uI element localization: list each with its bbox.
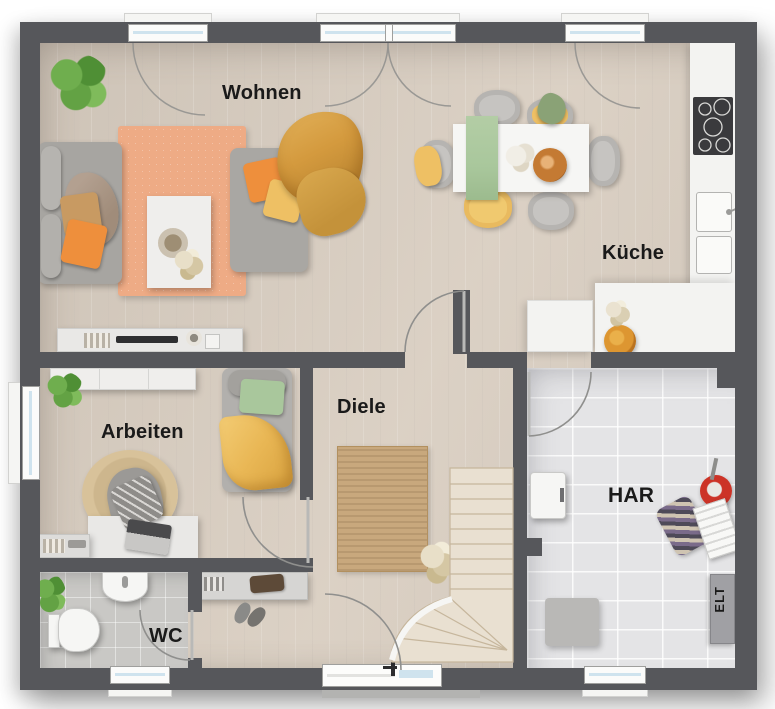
toilet: [58, 608, 100, 652]
room-label-elt: ELT: [712, 586, 727, 613]
wall-wc-hall: [188, 572, 202, 612]
speaker: [186, 330, 202, 346]
cooktop-burners: [693, 97, 733, 155]
wall-exterior-left: [20, 22, 40, 690]
wall-kitchen-hall: [467, 352, 527, 368]
tv: [116, 336, 178, 343]
books: [84, 333, 110, 348]
dining-chair: [528, 192, 574, 230]
bag: [249, 574, 284, 594]
books: [68, 540, 86, 548]
sofa-left-backrest: [41, 214, 61, 278]
room-label-wc: WC: [149, 625, 183, 648]
room-label-kueche: Küche: [602, 242, 664, 265]
room-label-har: HAR: [608, 484, 654, 508]
window: [110, 666, 170, 684]
perfume-bottles: [204, 577, 224, 591]
potted-plant: [36, 574, 66, 616]
wall-kitchen-har: [591, 352, 735, 368]
dried-plant: [414, 534, 460, 590]
green-pillow: [239, 379, 285, 416]
wall-stub-kitchen: [453, 290, 470, 354]
kitchen-cabinet: [527, 300, 593, 352]
wall-har-corner-pier: [717, 368, 735, 388]
window: [22, 386, 40, 480]
room-label-arbeiten: Arbeiten: [101, 421, 184, 444]
table-runner: [466, 116, 498, 200]
door-sidelight-glass: [399, 670, 433, 678]
media-box: [205, 334, 220, 349]
floor-plan: Wohnen Küche Diele Arbeiten WC HAR ELT: [0, 0, 775, 709]
sofa-left-backrest: [41, 146, 61, 210]
wall-living-hall: [40, 352, 405, 368]
wall-office-wc: [40, 558, 313, 572]
window: [128, 24, 208, 42]
window: [584, 666, 646, 684]
wall-har-pier: [527, 538, 542, 556]
door-panel-line: [327, 674, 395, 677]
room-label-diele: Diele: [337, 396, 386, 419]
books: [43, 539, 65, 553]
window: [565, 24, 645, 42]
door-handle: [383, 666, 397, 669]
wall-exterior-right: [735, 22, 757, 690]
wc-faucet: [122, 576, 128, 588]
door-handle: [391, 662, 395, 676]
heater-controls: [560, 488, 564, 502]
dried-plant-vase: [168, 244, 208, 284]
wall-office-hall: [300, 368, 313, 500]
wall-wc-stub: [188, 658, 202, 668]
front-door: [322, 664, 442, 687]
dining-chair: [586, 136, 620, 186]
window-double: [320, 24, 456, 42]
sink-basin: [696, 236, 732, 274]
window-mullion: [385, 25, 393, 41]
washing-machine: [545, 598, 599, 646]
potted-plant: [46, 372, 84, 410]
potted-plant: [48, 54, 110, 114]
decor-branch: [600, 296, 634, 330]
wall-har-left: [513, 368, 527, 668]
copper-bowl: [533, 148, 567, 182]
room-label-wohnen: Wohnen: [222, 82, 302, 105]
